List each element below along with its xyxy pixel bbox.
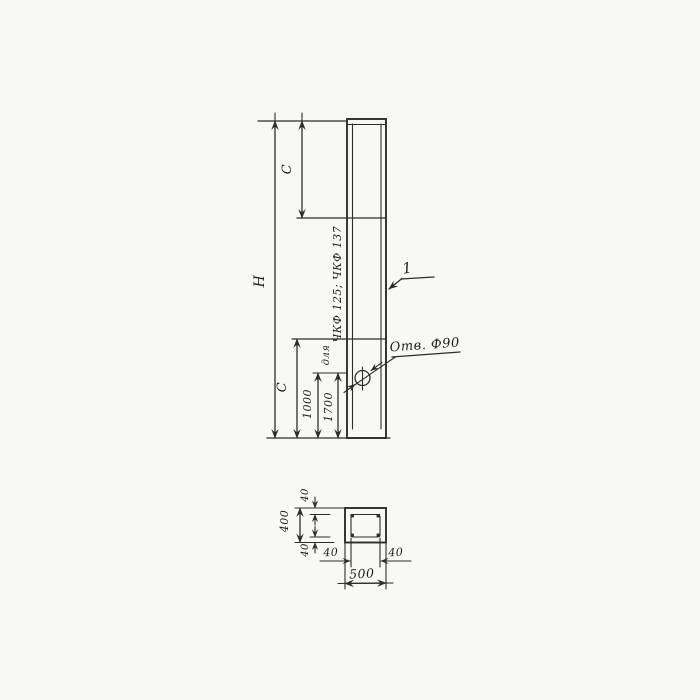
dim-label-wall-left: 40 — [322, 546, 339, 560]
drawing-sheet: H C C 1000 1700 для ЧКФ 125; ЧКФ 137 Отв… — [0, 0, 700, 700]
dim-label-upper-segment: C — [280, 164, 295, 174]
dim-label-lower-segment: C — [275, 382, 290, 392]
item-mark-label: 1 — [401, 258, 413, 277]
elevation-view: H C C 1000 1700 для ЧКФ 125; ЧКФ 137 Отв… — [252, 113, 460, 438]
dim-label-hole-offset-primary: 1000 — [301, 389, 314, 419]
rebar-top-right — [377, 514, 380, 517]
note-prefix-label: для — [321, 345, 332, 366]
note-products-label: ЧКФ 125; ЧКФ 137 — [331, 226, 344, 342]
rebar-bottom-left — [351, 534, 354, 537]
dim-label-section-height: 400 — [278, 510, 291, 534]
technical-drawing: H C C 1000 1700 для ЧКФ 125; ЧКФ 137 Отв… — [0, 0, 700, 700]
dim-label-wall-right: 40 — [387, 546, 404, 560]
section-inner-cavity — [351, 515, 380, 538]
hole-leader-arrow-lower — [344, 385, 355, 393]
dim-label-wall-top: 40 — [300, 488, 311, 503]
section-view: 40 400 40 40 40 500 — [278, 488, 411, 589]
dimension-line-section-width — [345, 583, 386, 584]
rebar-bottom-right — [377, 534, 380, 537]
dim-label-wall-bottom: 40 — [300, 543, 311, 558]
dim-label-overall-height: H — [252, 274, 268, 288]
rebar-top-left — [351, 514, 354, 517]
dim-label-hole-offset-alternate: 1700 — [322, 392, 335, 422]
item-leader-arrow — [389, 279, 402, 290]
dim-label-section-width: 500 — [349, 565, 375, 581]
